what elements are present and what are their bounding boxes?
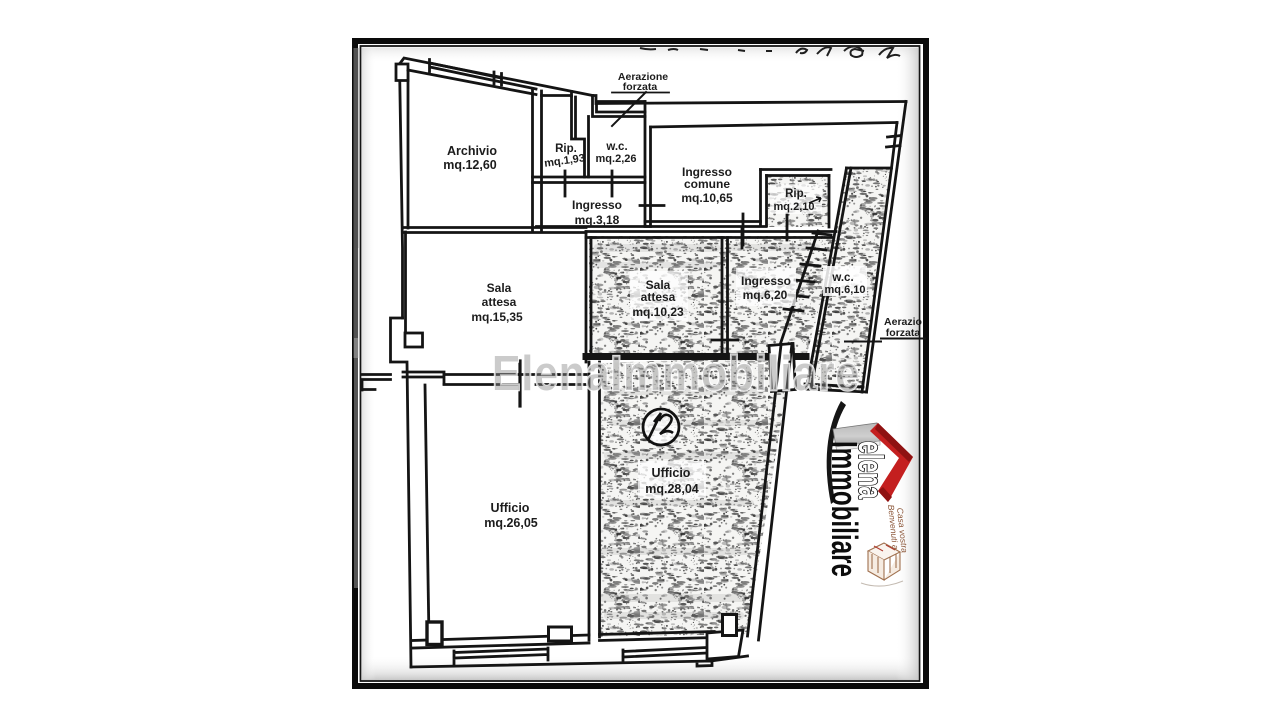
svg-text:forzata: forzata <box>886 327 921 339</box>
svg-text:mq.6,10: mq.6,10 <box>825 284 866 296</box>
svg-text:Rip.: Rip. <box>785 188 807 200</box>
svg-text:mq.26,05: mq.26,05 <box>484 516 538 530</box>
svg-text:Archivio: Archivio <box>447 144 497 158</box>
svg-text:mq.2,26: mq.2,26 <box>596 153 637 165</box>
svg-text:Immobiliare: Immobiliare <box>824 441 865 577</box>
svg-text:Sala: Sala <box>487 281 512 295</box>
svg-text:mq.12,60: mq.12,60 <box>443 158 497 172</box>
svg-text:ElenaImmobiliare: ElenaImmobiliare <box>492 347 860 401</box>
svg-text:w.c.: w.c. <box>831 272 853 284</box>
svg-text:Ingresso: Ingresso <box>741 274 791 288</box>
svg-text:mq.3,18: mq.3,18 <box>575 213 620 227</box>
svg-text:comune: comune <box>684 177 730 191</box>
svg-text:mq.6,20: mq.6,20 <box>743 288 788 302</box>
svg-text:Ufficio: Ufficio <box>491 501 530 515</box>
svg-text:mq.2,10: mq.2,10 <box>774 201 815 213</box>
svg-text:mq.15,35: mq.15,35 <box>471 310 523 324</box>
svg-text:forzata: forzata <box>623 81 658 93</box>
svg-text:mq.28,04: mq.28,04 <box>645 482 699 496</box>
svg-text:Ufficio: Ufficio <box>652 466 691 480</box>
svg-text:attesa: attesa <box>641 290 676 304</box>
svg-text:Ingresso: Ingresso <box>572 198 622 212</box>
svg-text:mq.10,23: mq.10,23 <box>632 305 684 319</box>
svg-text:w.c.: w.c. <box>605 141 627 153</box>
svg-text:attesa: attesa <box>482 295 517 309</box>
svg-text:mq.10,65: mq.10,65 <box>681 191 733 205</box>
